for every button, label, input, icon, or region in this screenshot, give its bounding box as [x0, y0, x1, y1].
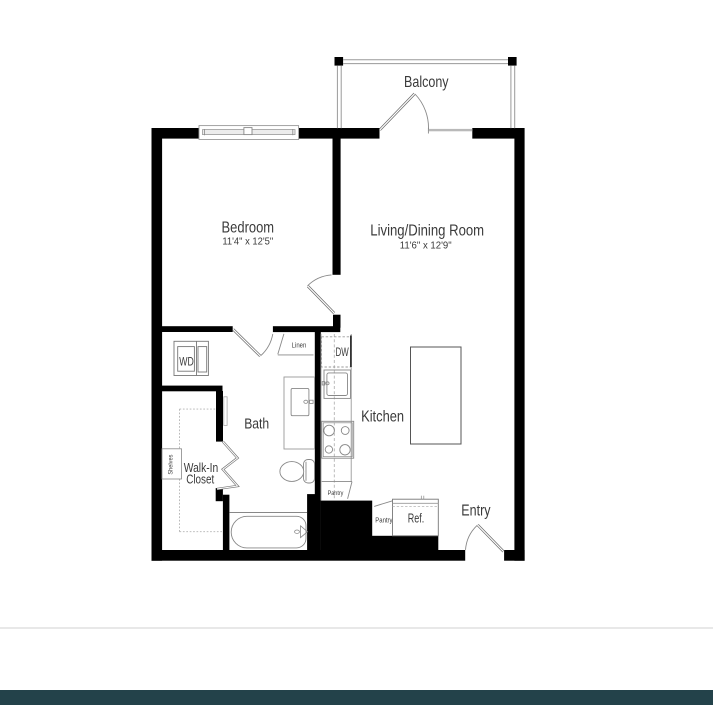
svg-text:DW: DW	[336, 347, 349, 359]
svg-text:WD: WD	[179, 355, 194, 369]
svg-text:Entry: Entry	[461, 502, 490, 519]
svg-text:Living/Dining Room: Living/Dining Room	[370, 222, 484, 239]
svg-text:11'4" x 12'5": 11'4" x 12'5"	[222, 236, 273, 248]
svg-text:Shelves: Shelves	[168, 454, 175, 475]
svg-text:11'6" x 12'9": 11'6" x 12'9"	[400, 240, 452, 252]
svg-text:Closet: Closet	[186, 471, 214, 486]
svg-text:Bedroom: Bedroom	[222, 220, 275, 237]
svg-text:Bath: Bath	[244, 417, 269, 433]
svg-text:Balcony: Balcony	[404, 74, 449, 91]
svg-text:Pantry: Pantry	[375, 515, 393, 524]
svg-text:Ref.: Ref.	[408, 512, 425, 526]
svg-text:Linen: Linen	[292, 340, 307, 349]
svg-text:Kitchen: Kitchen	[361, 409, 404, 426]
svg-text:Pantry: Pantry	[328, 490, 344, 497]
